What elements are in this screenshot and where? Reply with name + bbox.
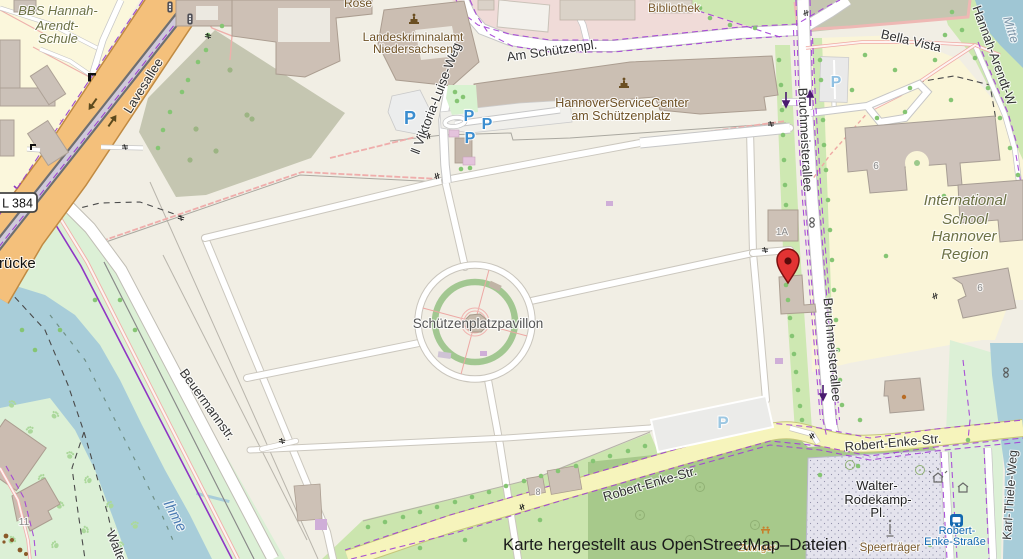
svg-text:International: International	[924, 192, 1007, 209]
svg-text:8: 8	[535, 487, 540, 497]
svg-text:School: School	[942, 211, 989, 228]
svg-text:Region: Region	[941, 246, 989, 263]
svg-text:Walter-: Walter-	[856, 478, 897, 493]
svg-text:Niedersachsen: Niedersachsen	[373, 42, 453, 56]
svg-text:rücke: rücke	[0, 255, 36, 272]
svg-text:6: 6	[977, 283, 983, 294]
svg-text:L 384: L 384	[2, 197, 33, 211]
svg-text:Karte hergestellt aus OpenStre: Karte hergestellt aus OpenStreetMap–Date…	[503, 535, 847, 554]
svg-text:Enke-Straße: Enke-Straße	[924, 536, 986, 548]
svg-text:Schule: Schule	[38, 31, 78, 46]
svg-text:P: P	[831, 74, 842, 91]
svg-text:P: P	[717, 413, 728, 432]
svg-text:am Schützenplatz: am Schützenplatz	[571, 109, 670, 123]
svg-text:1A: 1A	[776, 227, 789, 238]
svg-text:Bibliothek: Bibliothek	[648, 1, 701, 15]
svg-text:Schützenplatzpavillon: Schützenplatzpavillon	[413, 316, 544, 331]
svg-text:P: P	[404, 108, 416, 128]
svg-text:11: 11	[19, 517, 30, 528]
svg-text:BBS Hannah-: BBS Hannah-	[18, 3, 98, 18]
svg-text:HannoverServiceCenter: HannoverServiceCenter	[555, 96, 688, 110]
svg-text:Speerträger: Speerträger	[860, 542, 921, 554]
svg-text:P: P	[465, 130, 476, 147]
svg-text:Hannover: Hannover	[931, 228, 997, 245]
svg-text:6: 6	[873, 161, 879, 172]
svg-text:P: P	[464, 108, 475, 125]
svg-text:Pl.: Pl.	[870, 505, 885, 520]
svg-text:Rose: Rose	[344, 0, 372, 10]
svg-text:P: P	[482, 116, 493, 133]
